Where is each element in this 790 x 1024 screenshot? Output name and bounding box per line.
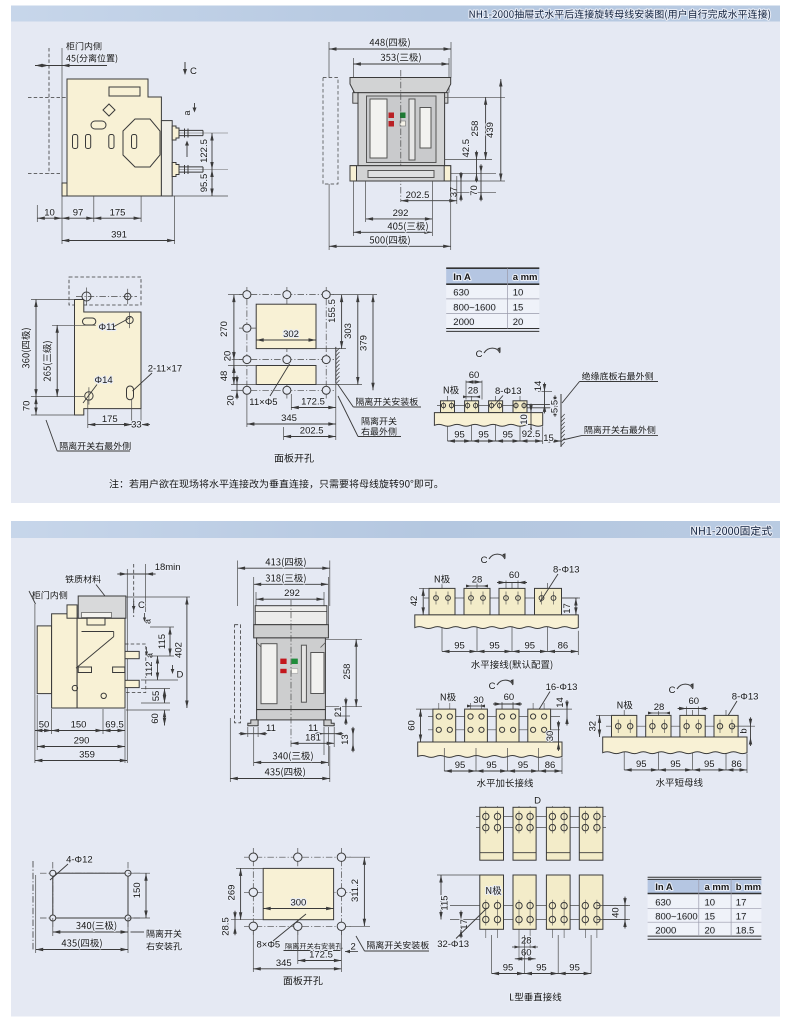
svg-text:60: 60 [521,947,532,958]
svg-text:4-Φ12: 4-Φ12 [66,855,93,866]
svg-text:48: 48 [219,371,230,382]
svg-text:17: 17 [562,603,573,614]
svg-text:Φ11: Φ11 [99,322,116,333]
svg-text:172.5: 172.5 [301,397,325,408]
svg-text:202.5: 202.5 [406,190,430,201]
svg-text:8-Φ13: 8-Φ13 [495,386,522,397]
svg-text:15: 15 [705,912,716,923]
svg-text:292: 292 [393,208,409,219]
svg-text:28: 28 [468,386,479,397]
svg-text:C: C [481,555,488,566]
svg-text:C: C [669,685,676,696]
svg-text:95: 95 [478,430,489,441]
svg-text:150: 150 [132,882,143,898]
svg-text:32: 32 [588,721,599,732]
svg-text:Φ14: Φ14 [95,375,113,386]
svg-text:115: 115 [157,634,168,649]
svg-text:70: 70 [469,185,480,196]
svg-text:42.5: 42.5 [461,139,472,158]
svg-text:37: 37 [449,187,460,198]
svg-text:42: 42 [409,596,420,607]
svg-text:28: 28 [521,936,532,947]
svg-text:175: 175 [102,414,118,425]
svg-text:17: 17 [459,919,470,930]
svg-text:86: 86 [731,759,742,770]
svg-text:b: b [739,728,750,733]
svg-text:122.5: 122.5 [199,139,210,163]
svg-text:95: 95 [454,641,465,652]
svg-text:15: 15 [513,302,524,313]
svg-text:630: 630 [453,288,469,299]
svg-text:95: 95 [518,760,529,771]
svg-text:97: 97 [73,208,84,219]
svg-text:C: C [190,66,197,77]
svg-text:630: 630 [655,897,671,908]
svg-text:439: 439 [485,122,496,138]
svg-text:2: 2 [351,942,356,953]
svg-text:92.5: 92.5 [522,429,541,440]
svg-text:D: D [177,670,184,681]
svg-text:258: 258 [342,664,353,680]
svg-text:270: 270 [219,321,230,337]
svg-text:15: 15 [543,433,554,444]
svg-text:a mm: a mm [513,272,538,283]
svg-text:8-Φ13: 8-Φ13 [553,565,580,576]
svg-text:95: 95 [704,759,715,770]
svg-text:95: 95 [670,759,681,770]
svg-text:115: 115 [440,895,451,910]
svg-text:95: 95 [455,760,466,771]
svg-text:300: 300 [290,898,306,909]
svg-text:292: 292 [284,588,300,599]
svg-text:60: 60 [689,696,700,707]
svg-text:800~1600: 800~1600 [453,302,496,313]
svg-text:95: 95 [503,963,514,974]
svg-text:86: 86 [545,760,556,771]
svg-text:359: 359 [79,750,95,761]
svg-text:55: 55 [151,691,162,702]
svg-text:40: 40 [611,907,622,918]
svg-text:14: 14 [555,697,566,708]
svg-text:800~1600: 800~1600 [655,912,698,923]
svg-text:20: 20 [223,351,234,362]
svg-text:70: 70 [21,401,32,412]
svg-text:11×Φ5: 11×Φ5 [249,397,277,408]
svg-text:391: 391 [111,230,127,241]
svg-text:28: 28 [472,575,483,586]
svg-text:C: C [138,600,145,611]
svg-text:10: 10 [705,897,716,908]
svg-text:33: 33 [131,419,142,430]
svg-text:10: 10 [519,414,530,425]
svg-text:172.5: 172.5 [309,950,333,961]
svg-text:95: 95 [525,641,536,652]
svg-text:16-Φ13: 16-Φ13 [546,682,578,693]
svg-text:11: 11 [266,723,276,734]
svg-text:269: 269 [227,885,238,901]
svg-text:95: 95 [636,759,647,770]
svg-text:402: 402 [174,642,185,658]
svg-text:95: 95 [569,963,580,974]
svg-text:60: 60 [504,692,515,703]
svg-text:95: 95 [536,963,547,974]
svg-text:155.5: 155.5 [327,299,338,323]
svg-text:8×Φ5: 8×Φ5 [257,940,281,951]
svg-text:175: 175 [110,208,126,219]
svg-text:60: 60 [407,720,418,731]
svg-text:69.5: 69.5 [105,720,124,731]
svg-text:2000: 2000 [655,925,676,936]
svg-text:258: 258 [470,121,481,137]
svg-text:10: 10 [44,208,55,219]
svg-text:86: 86 [558,641,569,652]
svg-text:20: 20 [226,395,237,406]
svg-text:95: 95 [486,760,497,771]
svg-text:345: 345 [276,958,292,969]
svg-text:13: 13 [340,734,351,745]
svg-text:202.5: 202.5 [300,426,324,437]
svg-text:20: 20 [705,925,716,936]
svg-text:5.5: 5.5 [550,400,561,413]
svg-text:379: 379 [359,335,370,351]
svg-text:60: 60 [509,570,520,581]
svg-text:302: 302 [283,329,299,340]
svg-text:28: 28 [654,702,665,713]
svg-text:b mm: b mm [736,882,761,893]
svg-text:21: 21 [333,707,344,718]
svg-text:2000: 2000 [453,317,474,328]
svg-text:18.5: 18.5 [736,925,755,936]
svg-text:30: 30 [545,731,556,742]
svg-text:a: a [182,110,192,115]
svg-text:In A: In A [453,272,471,283]
svg-text:14: 14 [533,381,544,392]
svg-text:30: 30 [473,695,484,706]
svg-text:28.5: 28.5 [220,917,231,936]
svg-text:181: 181 [305,733,321,744]
svg-text:8-Φ13: 8-Φ13 [732,692,759,703]
svg-text:303: 303 [343,323,354,339]
svg-text:95: 95 [454,430,465,441]
svg-text:10: 10 [513,288,524,299]
svg-text:20: 20 [513,317,524,328]
svg-text:60: 60 [150,713,161,724]
svg-text:In A: In A [655,882,673,893]
svg-text:a mm: a mm [705,882,730,893]
svg-text:18min: 18min [155,562,181,573]
svg-text:50: 50 [39,720,50,731]
svg-text:C: C [489,681,496,692]
svg-text:C: C [476,349,483,360]
svg-text:95: 95 [489,641,500,652]
svg-text:150: 150 [71,720,87,731]
svg-text:290: 290 [74,736,90,747]
svg-text:95: 95 [503,430,514,441]
svg-text:95.5: 95.5 [199,174,210,193]
svg-text:2-11×17: 2-11×17 [148,363,182,374]
svg-text:60: 60 [469,370,480,381]
svg-text:345: 345 [281,413,297,424]
svg-text:32-Φ13: 32-Φ13 [437,939,469,950]
svg-text:D: D [534,796,541,807]
svg-text:311.2: 311.2 [350,879,361,902]
svg-text:17: 17 [736,897,747,908]
svg-text:17: 17 [736,912,747,923]
svg-text:112: 112 [144,661,155,676]
